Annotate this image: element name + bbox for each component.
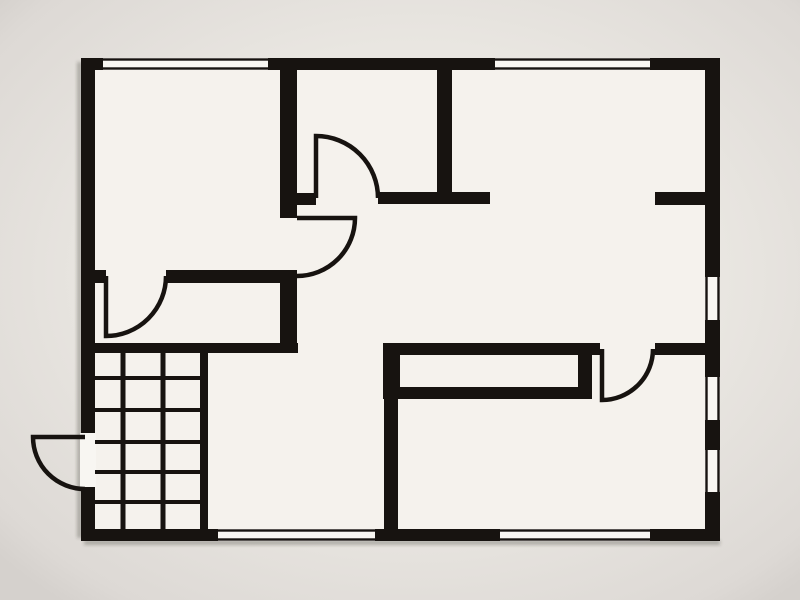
window-bottom-right-outer-line [500,529,650,531]
stair-tread-1 [95,376,200,380]
entry-door-opening [80,433,96,487]
br-room-top-stub [655,343,705,355]
window-top-center-inner-line [495,67,650,69]
floor-area [81,58,720,541]
window-right-upper-inner-line [705,277,707,320]
hall-top-wall [378,192,490,204]
stair-riser-2 [161,353,166,529]
window-top-left-outer-line [103,58,268,60]
tc-room-right-wall [437,70,452,204]
tl-room-bottom-wall-b [166,270,297,283]
window-right-upper-outer-line [717,277,719,320]
tr-room-stub [655,192,705,205]
closet-right-wall [578,353,592,389]
tl-room-right-wall [280,70,297,218]
stair-tread-2 [95,408,200,412]
staircase-layer [95,353,200,529]
stair-tread-5 [95,500,200,504]
floor-plan-screenshot [0,0,800,600]
window-top-center-outer-line [495,58,650,60]
window-bottom-left-outer-line [218,529,375,531]
stair-tread-3 [95,440,200,444]
window-right-lower-outer-line [717,450,719,492]
stair-tread-4 [95,470,200,474]
corridor-right-wall [280,270,297,353]
window-right-middle-inner-line [705,377,707,420]
stair-riser-1 [121,353,126,529]
window-right-lower-inner-line [705,450,707,492]
closet-top-wall [383,343,600,355]
rooms-divider-wall [384,399,398,529]
window-bottom-left-inner-line [218,538,375,540]
stair-top-wall [95,343,298,353]
hall-top-stub-left [297,193,316,205]
floor [81,58,720,541]
floor-plan-canvas [0,0,800,600]
window-right-middle-outer-line [717,377,719,420]
closet-bottom-wall [383,387,592,399]
window-bottom-right-inner-line [500,538,650,540]
window-top-left-inner-line [103,67,268,69]
stair-right-wall [200,353,208,529]
